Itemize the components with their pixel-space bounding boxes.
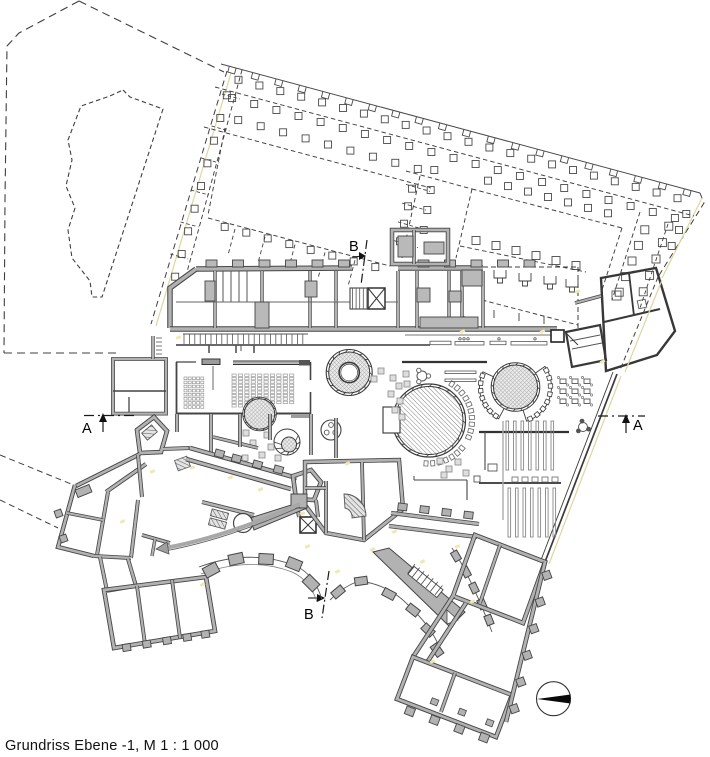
svg-text:Grundriss Ebene -1, M 1 : 1 00: Grundriss Ebene -1, M 1 : 1 000 — [5, 738, 219, 754]
svg-text:B: B — [304, 607, 314, 623]
svg-text:A: A — [633, 418, 643, 434]
svg-text:B: B — [349, 239, 359, 255]
svg-text:A: A — [82, 421, 92, 437]
